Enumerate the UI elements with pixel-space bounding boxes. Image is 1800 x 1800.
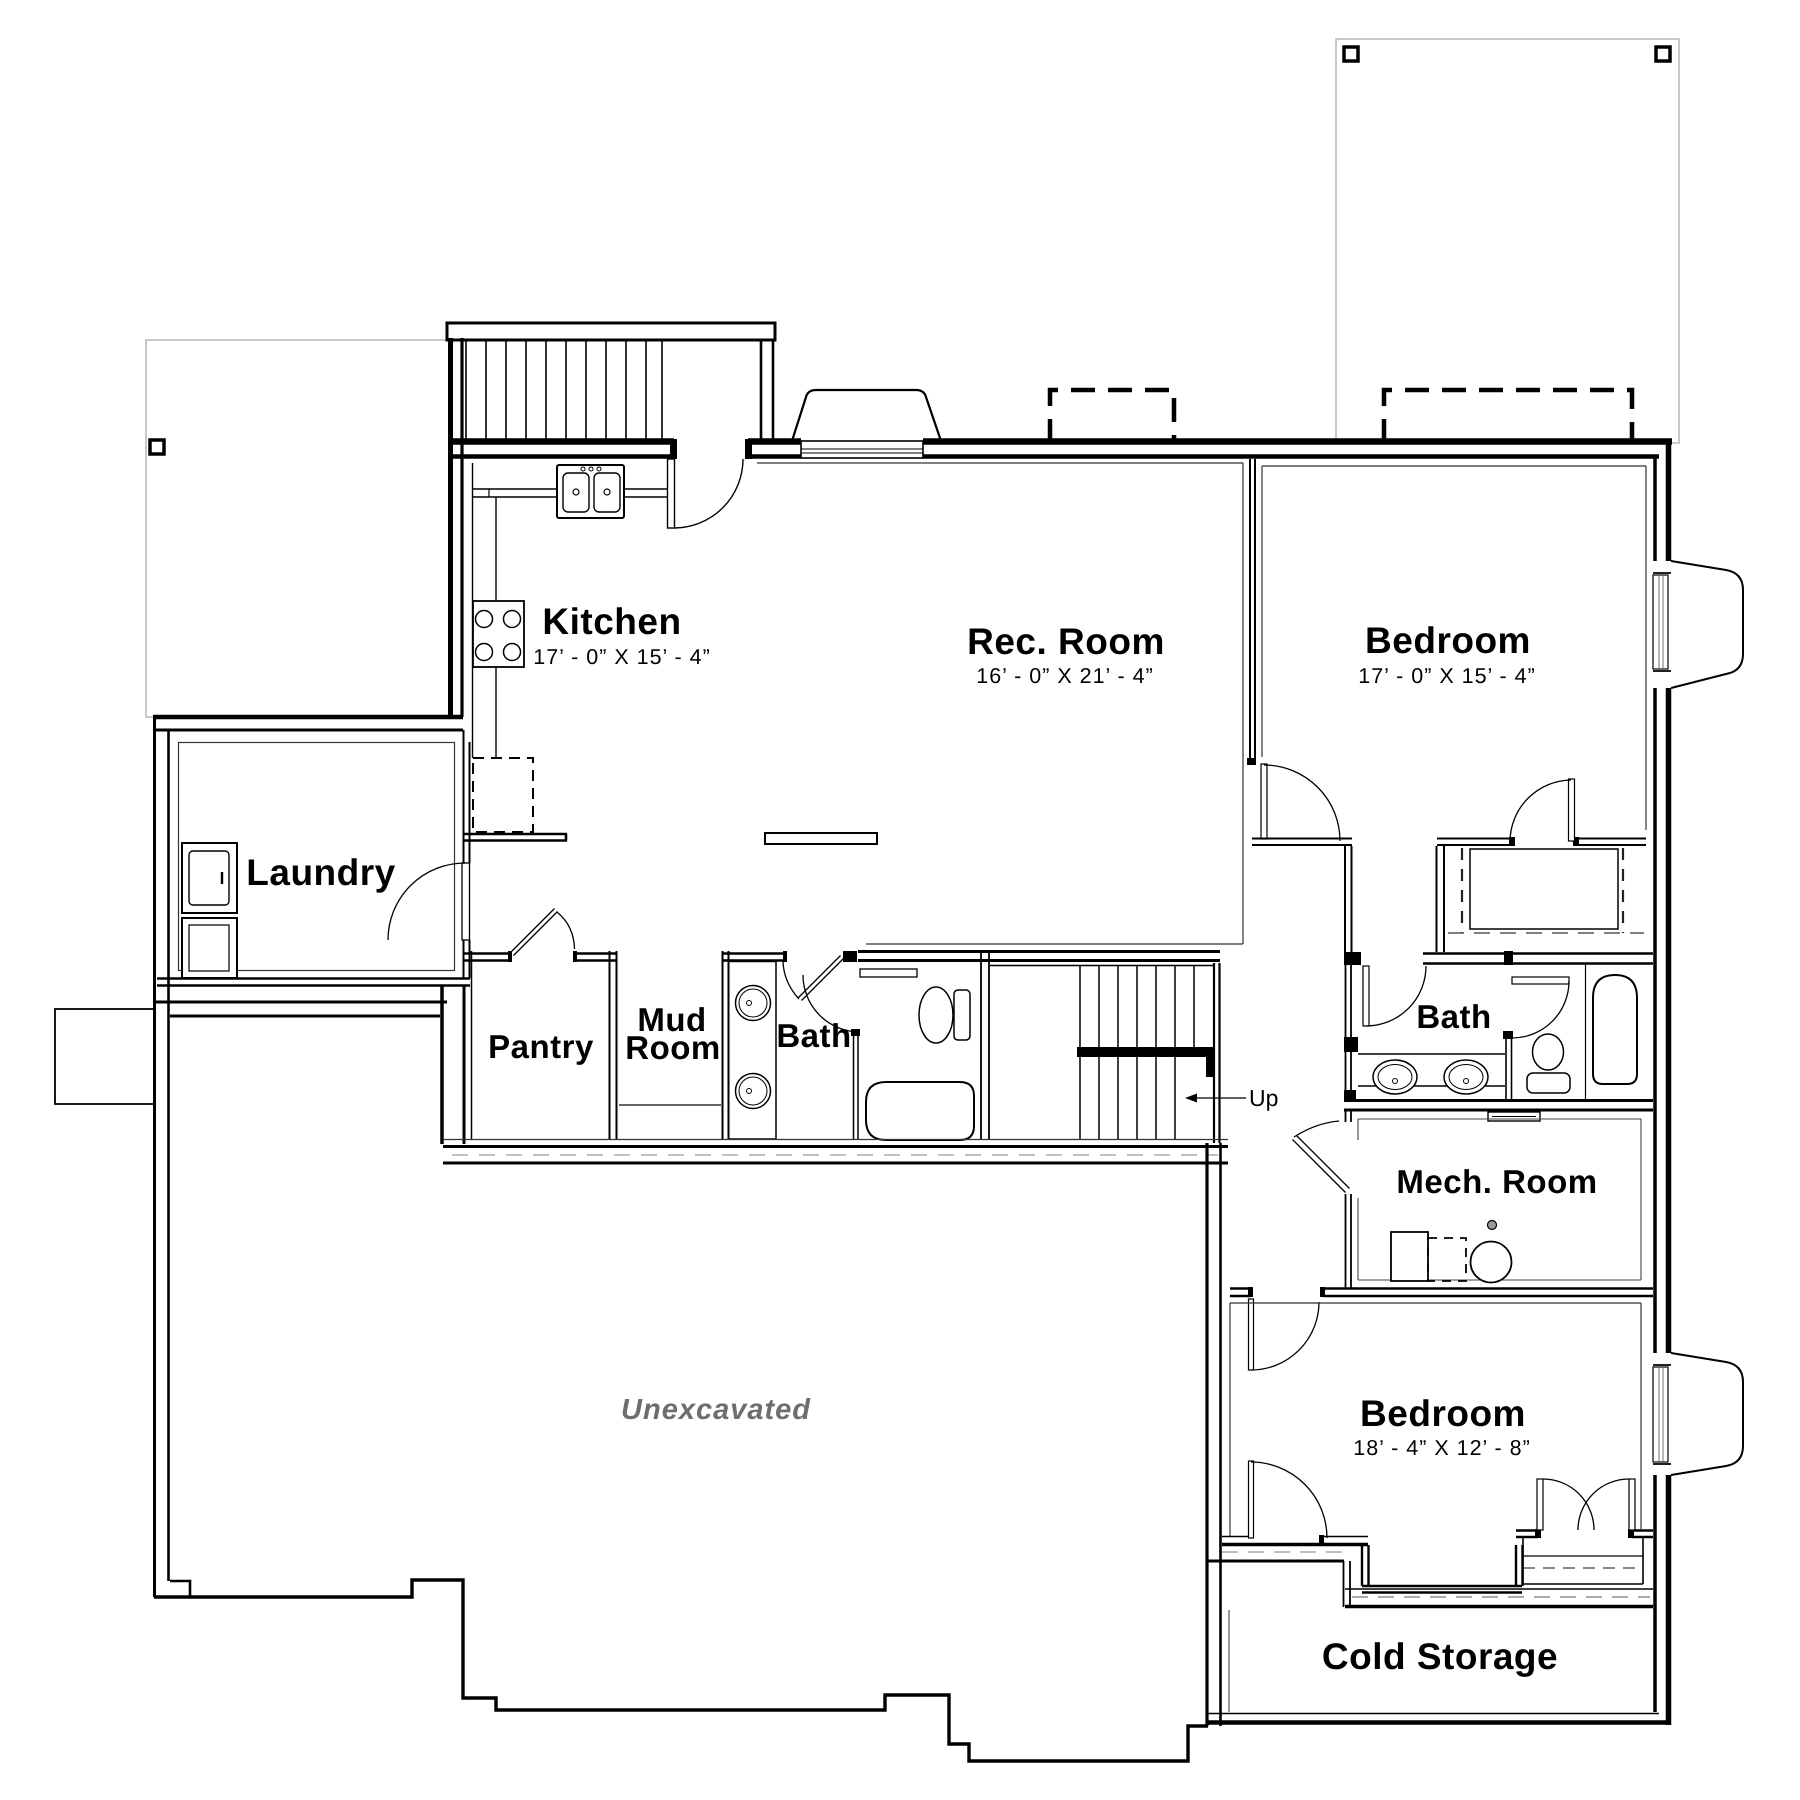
svg-text:Up: Up [1249, 1085, 1278, 1111]
svg-text:Unexcavated: Unexcavated [621, 1394, 811, 1426]
svg-text:Bath: Bath [776, 1017, 851, 1054]
svg-text:17’ - 0” X 15’ - 4”: 17’ - 0” X 15’ - 4” [533, 645, 711, 669]
svg-text:Mech. Room: Mech. Room [1396, 1163, 1597, 1200]
svg-text:Cold Storage: Cold Storage [1322, 1636, 1558, 1677]
svg-text:16’ - 0” X 21’ - 4”: 16’ - 0” X 21’ - 4” [976, 664, 1154, 688]
svg-text:Bedroom: Bedroom [1360, 1393, 1526, 1434]
svg-text:Bedroom: Bedroom [1365, 620, 1531, 661]
svg-text:Kitchen: Kitchen [542, 601, 681, 642]
svg-text:Laundry: Laundry [246, 852, 395, 893]
svg-text:Bath: Bath [1416, 998, 1491, 1035]
svg-text:17’ - 0” X 15’ - 4”: 17’ - 0” X 15’ - 4” [1358, 664, 1536, 688]
svg-text:Pantry: Pantry [488, 1028, 594, 1065]
svg-text:18’ - 4” X 12’ - 8”: 18’ - 4” X 12’ - 8” [1353, 1436, 1531, 1460]
svg-text:Room: Room [625, 1029, 721, 1066]
svg-text:Rec. Room: Rec. Room [967, 621, 1165, 662]
